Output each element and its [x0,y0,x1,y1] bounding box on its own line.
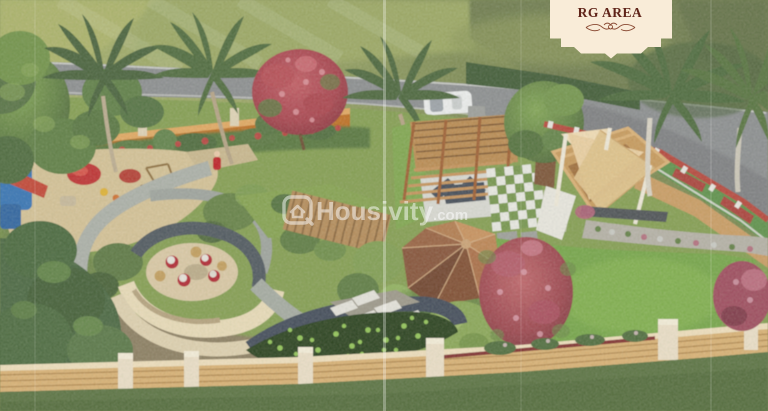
svg-text:RG AREA: RG AREA [578,5,643,20]
